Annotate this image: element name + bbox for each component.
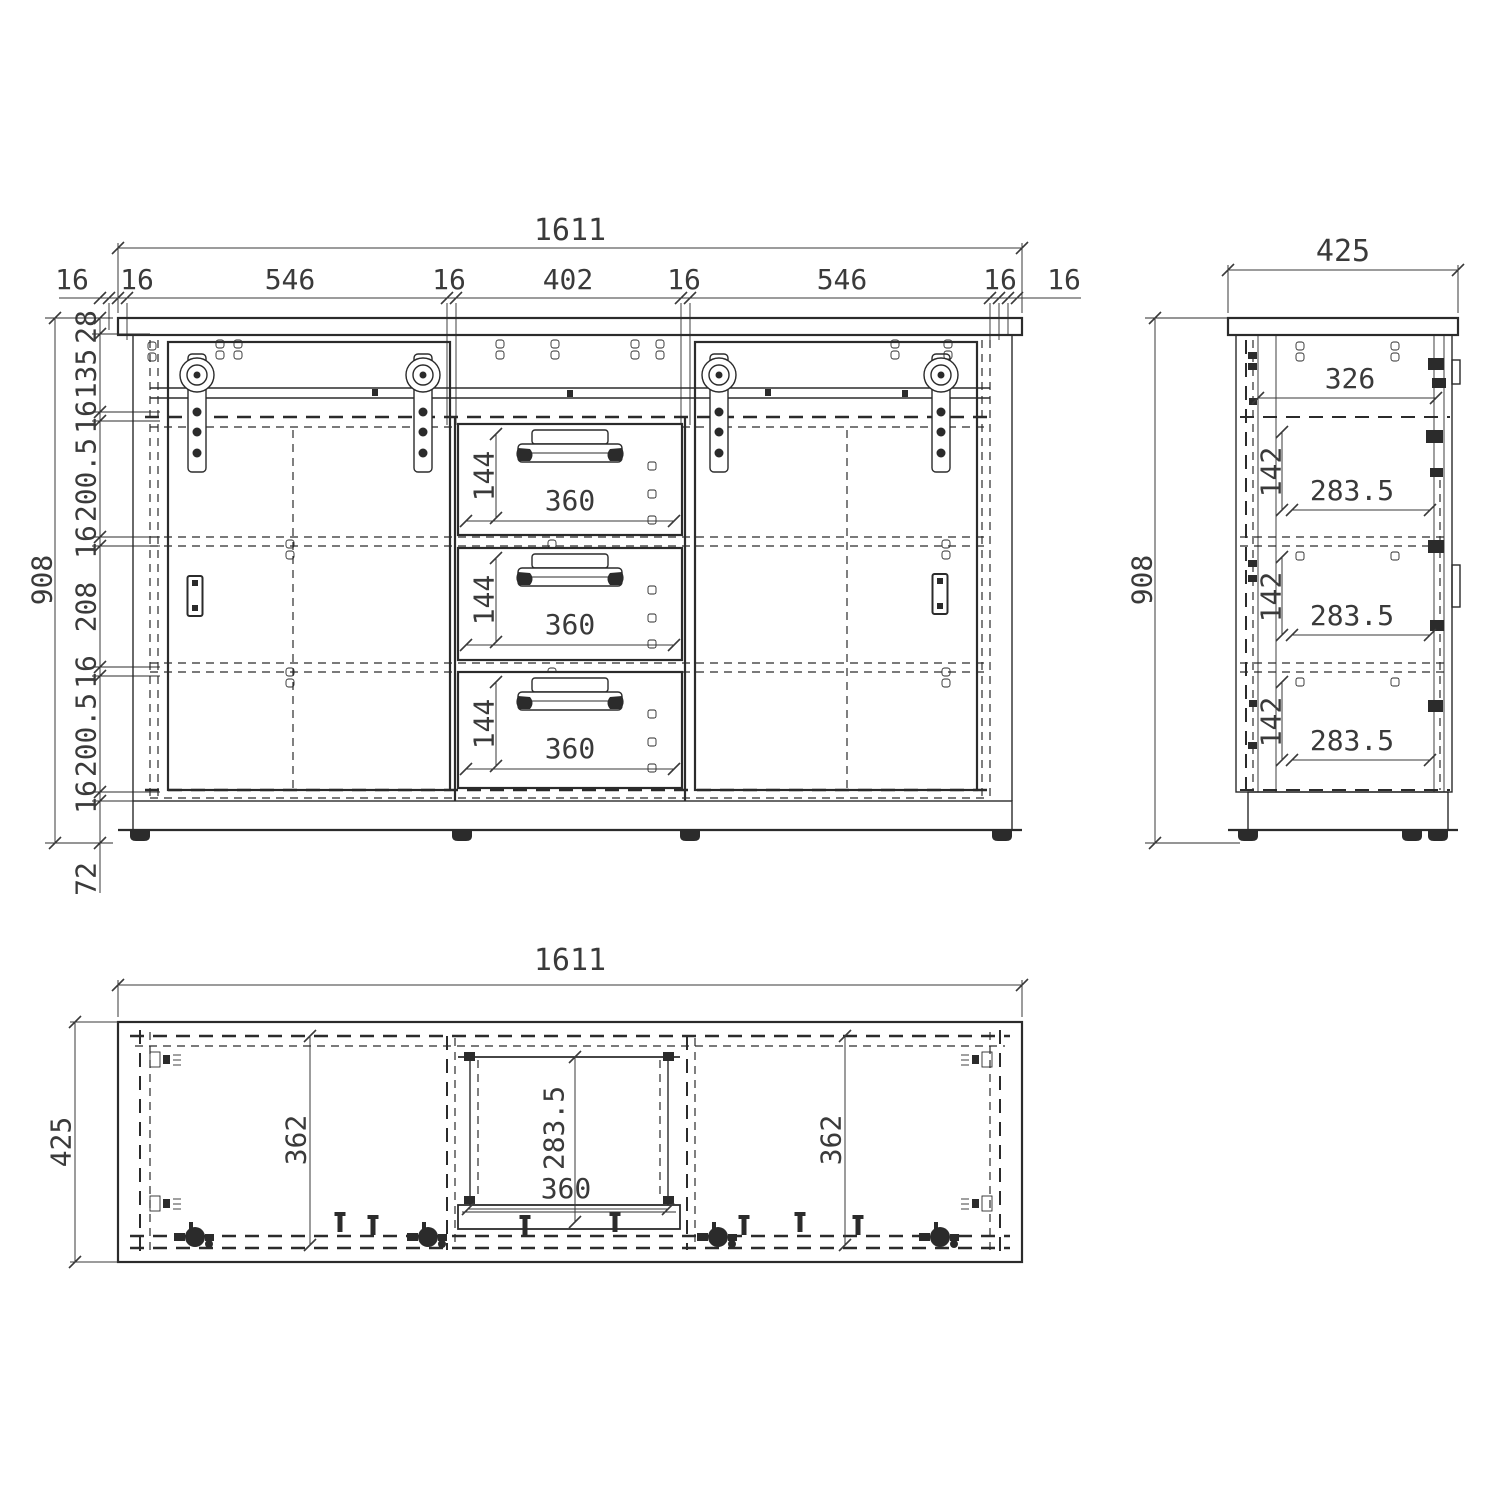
- dim-hc-7: 200.5: [70, 693, 103, 777]
- dim-plan-drawer-width: 360: [541, 1172, 592, 1205]
- side-dims: 425 908 326 283.5 283.5 283.5 142 142 14…: [1126, 234, 1465, 849]
- dim-wc-1: 16: [120, 263, 154, 296]
- dim-side-shelf-depth-1: 283.5: [1310, 474, 1394, 507]
- dim-wc-3: 16: [432, 263, 466, 296]
- technical-drawing: 360 360 360 144 144 144 1611 16 16 546: [0, 0, 1500, 1500]
- dim-side-shelf-height-2: 142: [1255, 572, 1288, 623]
- dim-wc-2: 546: [265, 263, 316, 296]
- foot-icon: [1238, 830, 1258, 841]
- dim-drawer1-width: 360: [545, 484, 596, 517]
- dim-hc-5: 208: [70, 582, 103, 633]
- dim-hc-1: 135: [70, 349, 103, 400]
- foot-icon: [992, 830, 1012, 841]
- right-door-handle-icon: [933, 574, 948, 614]
- rail-end-bracket: [1452, 360, 1460, 384]
- dim-front-overall-height: 908: [26, 555, 59, 606]
- dim-hc-3: 200.5: [70, 438, 103, 522]
- corner-fitting-icon: [961, 1196, 992, 1211]
- dim-hc-6: 16: [70, 655, 103, 689]
- dim-plan-left-door: 362: [280, 1115, 313, 1166]
- drawer-handle-icon: [516, 430, 623, 462]
- dim-side-depth: 425: [1316, 234, 1370, 269]
- front-height-dims: 28 135 16 200.5 16 208 16 200.5 16 72 90…: [26, 310, 161, 896]
- side-door-handle-icon: [1452, 565, 1460, 607]
- dim-hc-2: 16: [70, 400, 103, 434]
- plan-view: 1611 425 362 362 283.5 360: [45, 943, 1029, 1268]
- foot-icon: [1402, 830, 1422, 841]
- dim-side-shelf-depth-2: 283.5: [1310, 599, 1394, 632]
- front-top-panel: [118, 318, 1022, 335]
- dim-hc-4: 16: [70, 525, 103, 559]
- side-view: 425 908 326 283.5 283.5 283.5 142 142 14…: [1126, 234, 1465, 849]
- dim-drawer3-width: 360: [545, 732, 596, 765]
- roller-hardware-icon: [174, 1222, 214, 1248]
- dim-front-overall-width: 1611: [534, 213, 606, 248]
- foot-icon: [130, 830, 150, 841]
- roller-hardware-icon: [407, 1222, 447, 1248]
- dim-side-shelf-height-1: 142: [1255, 447, 1288, 498]
- foot-icon: [1428, 830, 1448, 841]
- dim-drawer2-width: 360: [545, 608, 596, 641]
- drawer-handle-icon: [516, 554, 623, 586]
- dim-wc-0: 16: [55, 263, 89, 296]
- dim-side-shelf-depth-3: 283.5: [1310, 724, 1394, 757]
- dim-front-plinth: 72: [70, 862, 103, 896]
- dim-side-top-inner: 326: [1325, 362, 1376, 395]
- corner-fitting-icon: [150, 1196, 181, 1211]
- dim-side-height: 908: [1126, 555, 1159, 606]
- foot-icon: [680, 830, 700, 841]
- dim-wc-8: 16: [1047, 263, 1081, 296]
- dim-wc-5: 16: [667, 263, 701, 296]
- drawer-handle-icon: [516, 678, 623, 710]
- dim-plan-drawer-depth: 283.5: [538, 1086, 571, 1170]
- corner-fitting-icon: [150, 1052, 181, 1067]
- left-door-handle-icon: [188, 576, 203, 616]
- foot-icon: [452, 830, 472, 841]
- dim-drawer2-height: 144: [468, 575, 501, 626]
- corner-fitting-icon: [961, 1052, 992, 1067]
- dim-plan-right-door: 362: [815, 1115, 848, 1166]
- dim-plan-depth: 425: [45, 1117, 78, 1168]
- roller-hardware-icon: [919, 1222, 959, 1248]
- dim-hc-0: 28: [70, 310, 103, 344]
- dim-drawer3-height: 144: [468, 699, 501, 750]
- front-view: 360 360 360 144 144 144 1611 16 16 546: [26, 213, 1082, 896]
- side-top-panel: [1228, 318, 1458, 335]
- dim-wc-6: 546: [817, 263, 868, 296]
- dim-hc-8: 16: [70, 780, 103, 814]
- dim-side-shelf-height-3: 142: [1255, 697, 1288, 748]
- dim-drawer1-height: 144: [468, 451, 501, 502]
- dim-plan-width: 1611: [534, 943, 606, 978]
- roller-hardware-icon: [697, 1222, 737, 1248]
- dim-wc-7: 16: [983, 263, 1017, 296]
- left-sliding-door: [168, 342, 450, 790]
- dim-wc-4: 402: [543, 263, 594, 296]
- blueprint-page: 360 360 360 144 144 144 1611 16 16 546: [0, 0, 1500, 1500]
